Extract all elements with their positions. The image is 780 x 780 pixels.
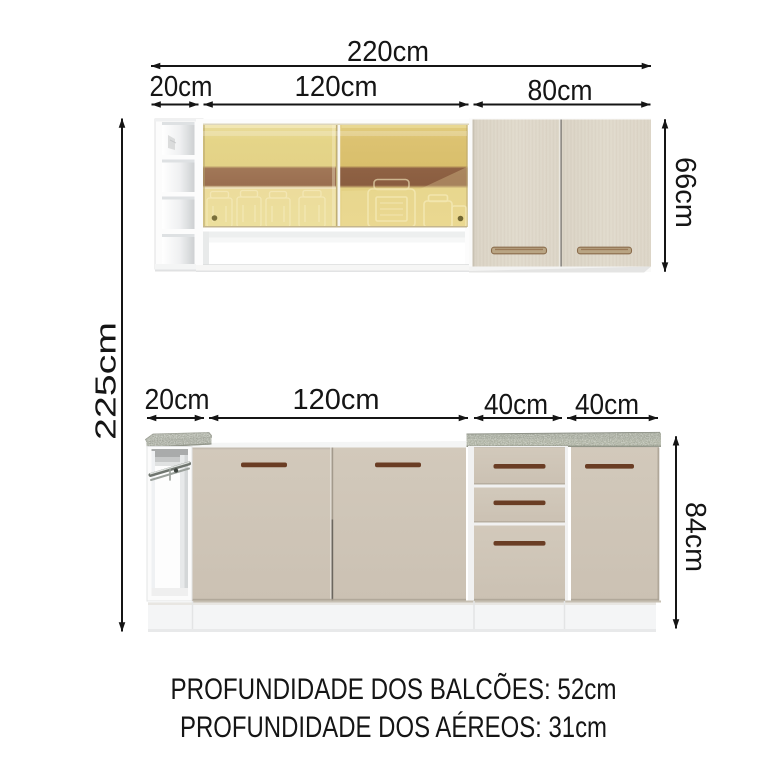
svg-text:120cm: 120cm <box>293 384 380 416</box>
svg-text:PROFUNDIDADE DOS AÉREOS: 31cm: PROFUNDIDADE DOS AÉREOS: 31cm <box>180 711 607 744</box>
svg-text:84cm: 84cm <box>679 502 711 572</box>
svg-text:40cm: 40cm <box>484 389 548 421</box>
svg-text:220cm: 220cm <box>347 36 429 68</box>
svg-text:120cm: 120cm <box>295 71 378 103</box>
svg-text:20cm: 20cm <box>150 71 213 103</box>
svg-text:40cm: 40cm <box>575 389 639 421</box>
svg-text:66cm: 66cm <box>669 157 701 228</box>
svg-text:80cm: 80cm <box>528 75 593 107</box>
svg-text:20cm: 20cm <box>145 384 210 416</box>
svg-text:PROFUNDIDADE DOS BALCÕES: 52cm: PROFUNDIDADE DOS BALCÕES: 52cm <box>171 672 617 706</box>
svg-text:225cm: 225cm <box>91 322 123 440</box>
